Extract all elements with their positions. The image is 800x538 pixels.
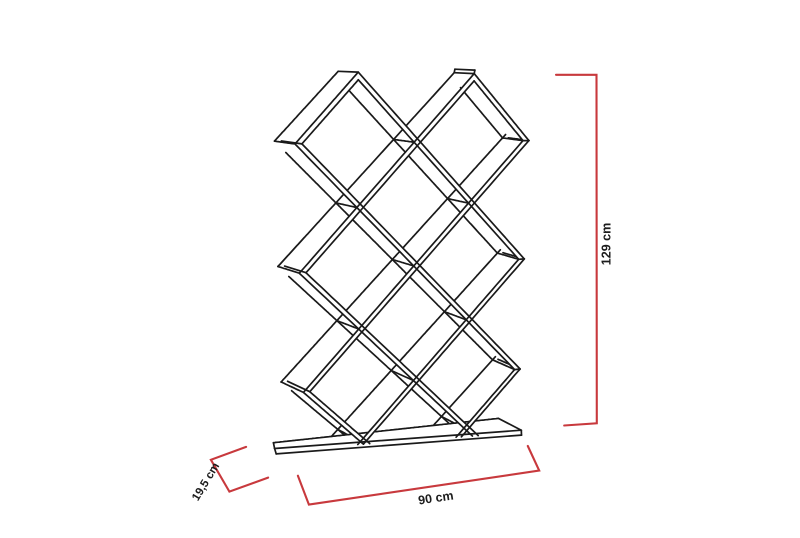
svg-text:129 cm: 129 cm: [600, 223, 614, 265]
